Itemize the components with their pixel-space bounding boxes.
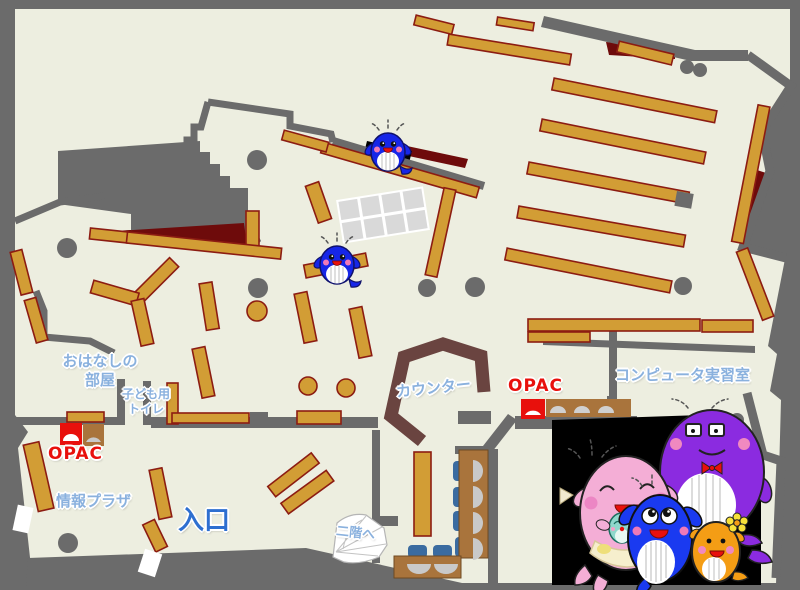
label-opac-left: OPAC (48, 444, 103, 465)
label-line: 子ども用 (122, 387, 170, 401)
label-line: トイレ (128, 402, 164, 416)
label-kids-toilet: 子ども用 トイレ (113, 387, 179, 417)
label-computer-room: コンピュータ実習室 (615, 366, 750, 385)
label-line: 部屋 (85, 371, 115, 389)
label-joho-plaza: 情報プラザ (56, 492, 131, 511)
library-floor-map: おはなしの 部屋 子ども用 トイレ OPAC 情報プラザ 入口 二階へ カウンタ… (0, 0, 800, 590)
opac-terminals-left (60, 423, 104, 446)
label-line: おはなしの (62, 352, 137, 370)
opac-terminals-center (521, 399, 631, 419)
label-entrance: 入口 (178, 505, 230, 538)
top-wall (8, 2, 794, 9)
label-storytelling-room: おはなしの 部屋 (52, 352, 148, 390)
label-opac-center: OPAC (508, 376, 563, 397)
mascot-photo (552, 399, 775, 590)
